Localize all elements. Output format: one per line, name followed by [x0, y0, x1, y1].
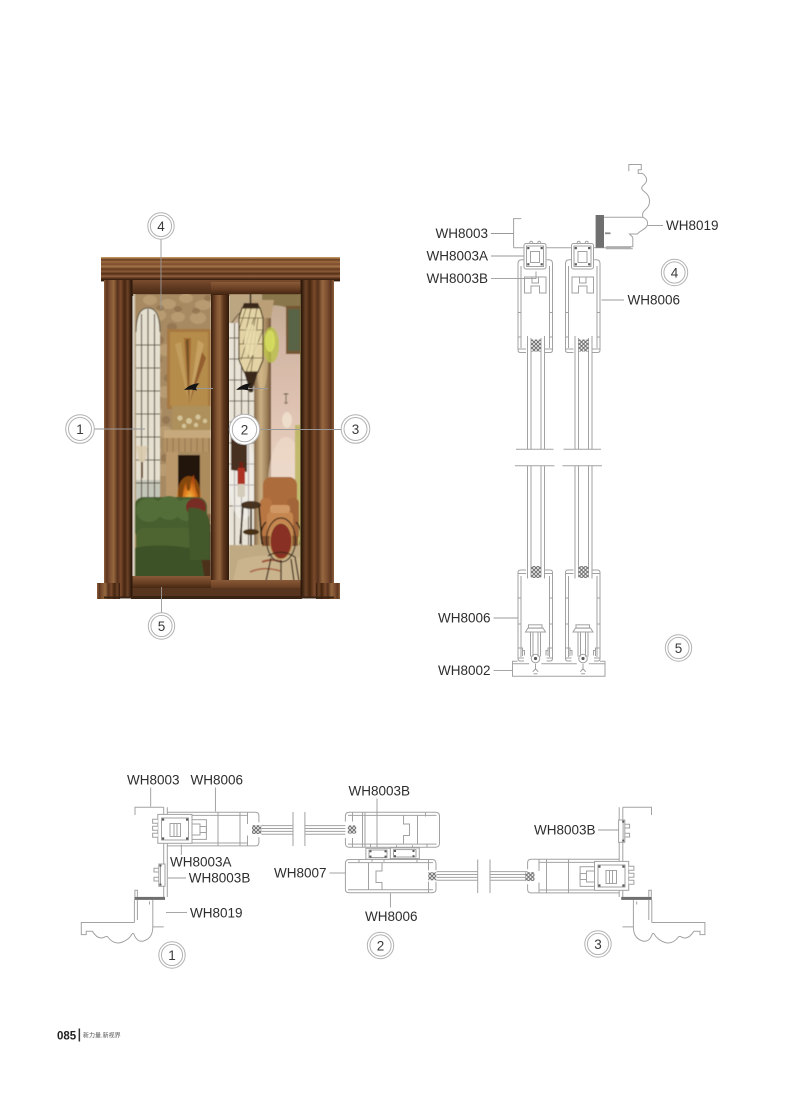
svg-text:WH8003B: WH8003B [189, 871, 251, 886]
svg-text:新力量.新视界: 新力量.新视界 [83, 1032, 121, 1040]
svg-text:WH8006: WH8006 [628, 293, 681, 308]
svg-text:WH8019: WH8019 [190, 905, 243, 920]
svg-text:WH8006: WH8006 [191, 773, 244, 788]
svg-text:4: 4 [157, 219, 165, 234]
svg-text:WH8006: WH8006 [438, 611, 491, 626]
svg-text:085: 085 [57, 1031, 77, 1043]
svg-text:2: 2 [241, 423, 249, 438]
svg-text:WH8006: WH8006 [365, 909, 418, 924]
svg-text:5: 5 [158, 619, 166, 634]
svg-text:WH8002: WH8002 [438, 663, 491, 678]
svg-text:WH8003A: WH8003A [426, 249, 488, 264]
svg-text:4: 4 [671, 266, 679, 281]
svg-text:WH8003A: WH8003A [170, 855, 232, 870]
svg-text:3: 3 [594, 937, 602, 952]
svg-text:5: 5 [675, 641, 683, 656]
svg-text:1: 1 [168, 948, 176, 963]
svg-text:1: 1 [76, 422, 84, 437]
svg-text:3: 3 [352, 422, 360, 437]
svg-text:WH8003B: WH8003B [426, 271, 488, 286]
svg-text:2: 2 [377, 939, 385, 954]
svg-text:WH8003B: WH8003B [534, 823, 596, 838]
svg-text:WH8007: WH8007 [274, 866, 327, 881]
svg-text:WH8019: WH8019 [666, 218, 719, 233]
svg-text:WH8003: WH8003 [435, 226, 488, 241]
svg-text:WH8003: WH8003 [127, 773, 180, 788]
svg-text:WH8003B: WH8003B [349, 784, 411, 799]
